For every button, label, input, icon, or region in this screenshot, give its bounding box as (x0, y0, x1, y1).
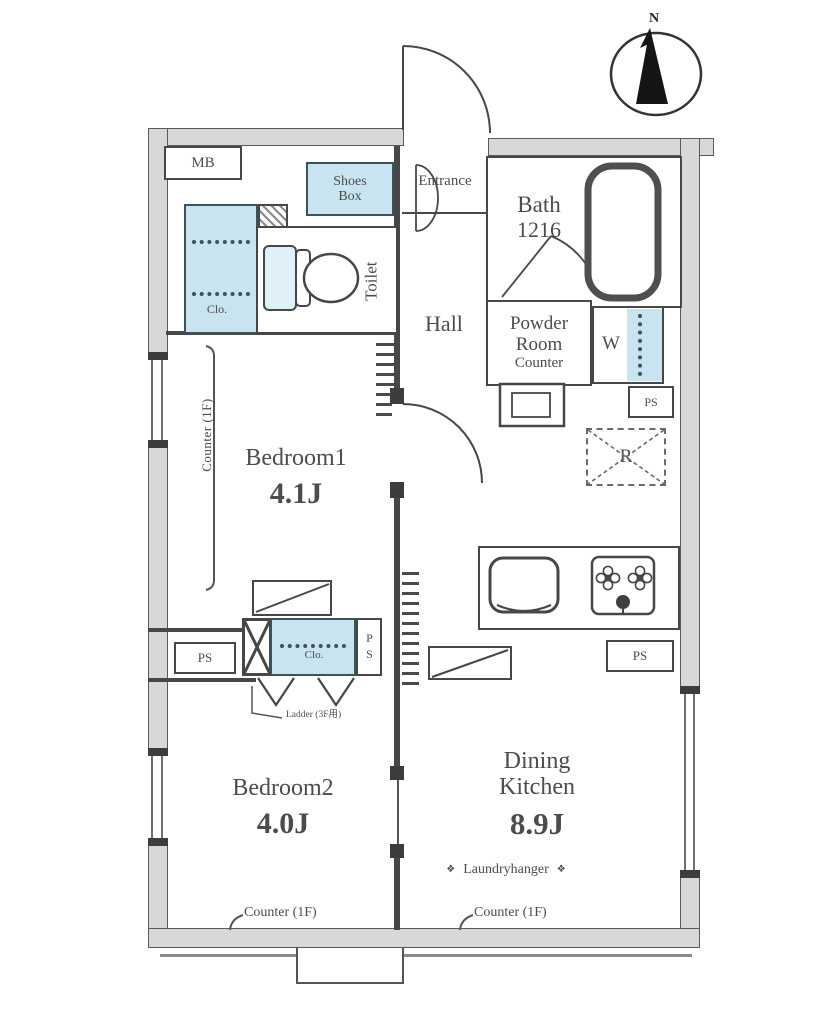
pipe-space-kitchen: PS (606, 640, 674, 672)
bedroom2-door-opening (392, 780, 402, 844)
washing-machine-dots (638, 314, 642, 376)
ladder-leader-line (252, 686, 282, 718)
powder-room-label-1: Powder (510, 314, 568, 335)
closet1-hanger-pipe (192, 240, 250, 244)
powder-room-label-block: Powder Room Counter (490, 302, 588, 384)
refrigerator-space: R (586, 428, 666, 486)
window-bedroom2-frame-top (148, 748, 168, 756)
laundry-hanger-label: Laundryhanger (463, 862, 549, 877)
window-dining-frame-top (680, 686, 700, 694)
closet2-cross-box (242, 618, 272, 676)
dining-cabinet (428, 646, 512, 680)
pipe-space-top-right-label: PS (644, 396, 657, 409)
washing-machine-label: W (602, 334, 620, 355)
pipe-space-left-label: PS (198, 651, 212, 665)
wall-bedroom2-top (148, 678, 256, 682)
counter-bottom-left-label: Counter (1F) (244, 905, 317, 920)
shoes-box-label: Shoes Box (326, 174, 374, 204)
laundry-mark-left: ❖ (446, 865, 455, 876)
toilet-label: Toilet (363, 261, 381, 300)
bedroom2-door-jamb-bottom (390, 844, 404, 858)
powder-room-label-3: Counter (515, 355, 563, 371)
vanity-sink-outer (500, 384, 564, 426)
closet2-label: Clo. (305, 650, 324, 662)
entrance-door-swing (403, 46, 490, 133)
counter-bottom-right-label: Counter (1F) (474, 905, 547, 920)
ladder-strip-dining (402, 572, 419, 688)
pipe-space-left: PS (174, 642, 236, 674)
bedroom2-area: 4.0J (257, 808, 310, 840)
ladder-label-wrap: Ladder (3F用) (286, 708, 402, 722)
wall-bottom (148, 928, 700, 948)
ladder-label: Ladder (3F用) (286, 710, 341, 720)
porch-step (296, 946, 404, 984)
hall-label-wrap: Hall (406, 308, 482, 340)
powder-room-label-2: Room (516, 335, 562, 356)
bedroom1-area: 4.1J (270, 478, 323, 510)
bedroom2-label: Bedroom2 (232, 776, 333, 802)
wall-ps-niche-top (148, 628, 256, 632)
meter-box-label: MB (191, 155, 214, 171)
compass-circle (611, 33, 701, 115)
closet1-hanger-pipe2 (192, 292, 250, 296)
pipe-space-kitchen-label: PS (633, 649, 647, 663)
balcony-edge-line (160, 954, 692, 957)
vanity-sink-basin (512, 393, 550, 417)
compass-needle-barb (640, 28, 651, 48)
window-dining-glass (684, 686, 686, 878)
pipe-space-vertical: PS (356, 618, 382, 676)
entrance-label: Entrance (418, 173, 471, 189)
window-bedroom2-glass (151, 748, 153, 846)
closet2-cabinet (252, 580, 332, 616)
bedroom1-door-opening (392, 404, 402, 482)
wall-top-left (148, 128, 404, 146)
window-dining-frame-bottom (680, 870, 700, 878)
bedroom1-door-jamb-top (390, 388, 404, 404)
bath-size: 1216 (517, 218, 561, 242)
compass-north-label: N (649, 11, 659, 26)
counter-left-label: Counter (1F) (200, 398, 214, 472)
closet1-label: Clo. (190, 300, 244, 318)
closet2-folding-door-marks (258, 678, 354, 705)
window-bedroom2-frame-bottom (148, 838, 168, 846)
window-dining (680, 686, 700, 878)
entrance-label-wrap: Entrance (402, 170, 488, 192)
meter-box: MB (164, 146, 242, 180)
bedroom1-door-swing (403, 404, 482, 483)
kitchen-counter (478, 546, 680, 630)
dining-kitchen-label-2: Kitchen (499, 775, 575, 801)
bath-label: Bath (517, 193, 560, 218)
floor-plan-canvas: MB Shoes Box Clo. Toilet Bath 1216 Powde… (0, 0, 826, 1024)
dining-kitchen-label-1: Dining (504, 749, 571, 775)
window-dining-glass2 (693, 686, 695, 878)
closet1-text: Clo. (207, 303, 227, 316)
pipe-space-vertical-label: PS (363, 631, 376, 663)
counter-bottom-left-label-wrap: Counter (1F) (244, 902, 376, 924)
pipe-space-top-right: PS (628, 386, 674, 418)
bedroom2-label-block: Bedroom2 4.0J (192, 760, 374, 856)
bedroom2-door-jamb-top (390, 766, 404, 780)
compass-north-label-wrap: N (642, 10, 666, 28)
closet2-label-wrap: Clo. (288, 648, 340, 664)
window-bedroom2-glass2 (161, 748, 163, 846)
laundry-hanger-block: ❖ Laundryhanger ❖ (404, 858, 608, 882)
shoes-box: Shoes Box (306, 162, 394, 216)
counter-left-label-wrap: Counter (1F) (152, 378, 262, 492)
window-bedroom1-frame-top (148, 352, 168, 360)
dining-kitchen-label-block: Dining Kitchen 8.9J (446, 732, 628, 858)
refrigerator-label: R (620, 447, 633, 468)
dining-kitchen-area: 8.9J (510, 807, 564, 840)
laundry-mark-right: ❖ (557, 865, 566, 876)
hall-label: Hall (425, 312, 463, 336)
washing-machine-label-wrap: W (594, 318, 628, 370)
toilet-label-wrap: Toilet (352, 238, 392, 324)
bedroom1-door-jamb-bottom (390, 482, 404, 498)
counter-bottom-right-label-wrap: Counter (1F) (474, 902, 606, 924)
washing-machine-pan (627, 309, 662, 381)
bath-label-block: Bath 1216 (496, 190, 582, 244)
compass-needle (636, 28, 668, 104)
